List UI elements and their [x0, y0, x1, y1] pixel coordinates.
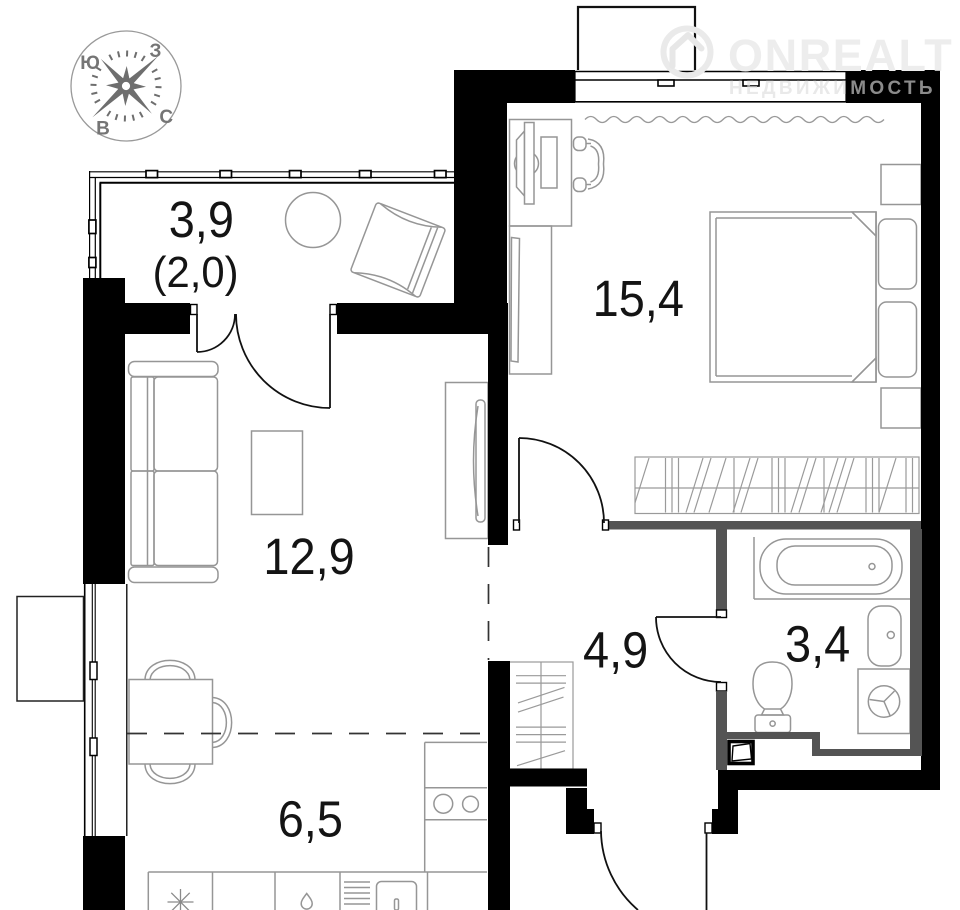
svg-text:15,4: 15,4	[593, 271, 684, 327]
svg-text:Ю: Ю	[80, 53, 100, 74]
svg-text:ONREALT: ONREALT	[728, 30, 953, 81]
svg-text:3,4: 3,4	[785, 617, 850, 673]
svg-text:3,9: 3,9	[169, 192, 234, 248]
svg-text:З: З	[149, 41, 161, 62]
svg-text:(2,0): (2,0)	[153, 248, 239, 297]
svg-text:12,9: 12,9	[263, 529, 354, 585]
svg-text:В: В	[96, 119, 110, 140]
svg-text:6,5: 6,5	[278, 792, 343, 848]
svg-text:С: С	[159, 107, 173, 128]
svg-text:НЕДВИЖИМОСТЬ: НЕДВИЖИМОСТЬ	[729, 78, 936, 99]
svg-text:4,9: 4,9	[583, 623, 648, 679]
